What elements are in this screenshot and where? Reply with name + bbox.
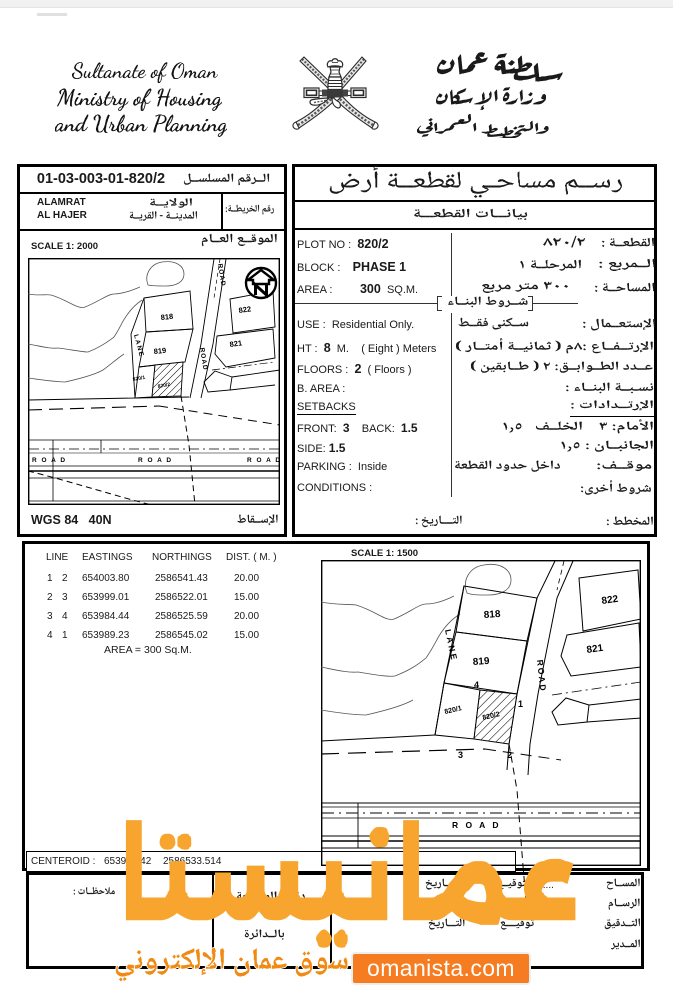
svg-text:LANE: LANE [443, 628, 460, 662]
svg-text:R O A D: R O A D [138, 457, 173, 464]
svg-text:1: 1 [518, 699, 523, 709]
svg-text:818: 818 [483, 609, 501, 621]
svg-text:3: 3 [458, 750, 463, 760]
svg-text:819: 819 [153, 346, 166, 356]
svg-text:R O A D: R O A D [32, 457, 67, 464]
svg-text:822: 822 [601, 594, 619, 607]
svg-text:820/1: 820/1 [444, 705, 463, 716]
svg-text:818: 818 [160, 312, 173, 322]
svg-text:820/1: 820/1 [132, 375, 146, 383]
svg-text:4: 4 [474, 680, 479, 690]
svg-text:2: 2 [507, 750, 512, 760]
svg-text:819: 819 [472, 656, 490, 668]
svg-text:822: 822 [238, 304, 252, 315]
svg-text:821: 821 [229, 338, 243, 349]
svg-text:821: 821 [586, 643, 604, 656]
svg-text:ROAD: ROAD [535, 659, 548, 693]
svg-text:ROAD: ROAD [198, 347, 209, 371]
svg-text:LANE: LANE [132, 334, 145, 359]
svg-text:R O A D: R O A D [247, 457, 280, 464]
